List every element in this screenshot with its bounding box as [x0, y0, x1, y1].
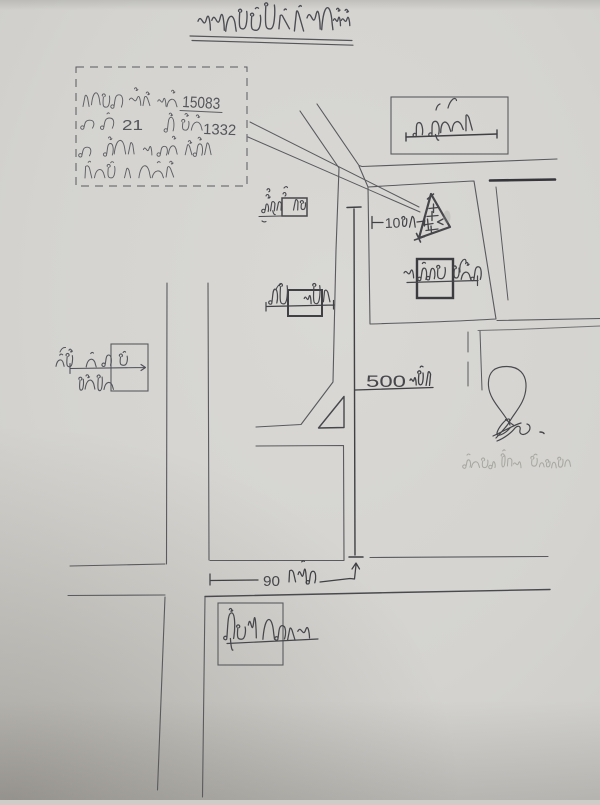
svg-text:10: 10	[385, 214, 401, 231]
svg-text:15083: 15083	[182, 94, 221, 113]
svg-text:1332: 1332	[203, 121, 237, 139]
svg-text:21: 21	[122, 117, 143, 134]
svg-text:90: 90	[263, 573, 280, 590]
